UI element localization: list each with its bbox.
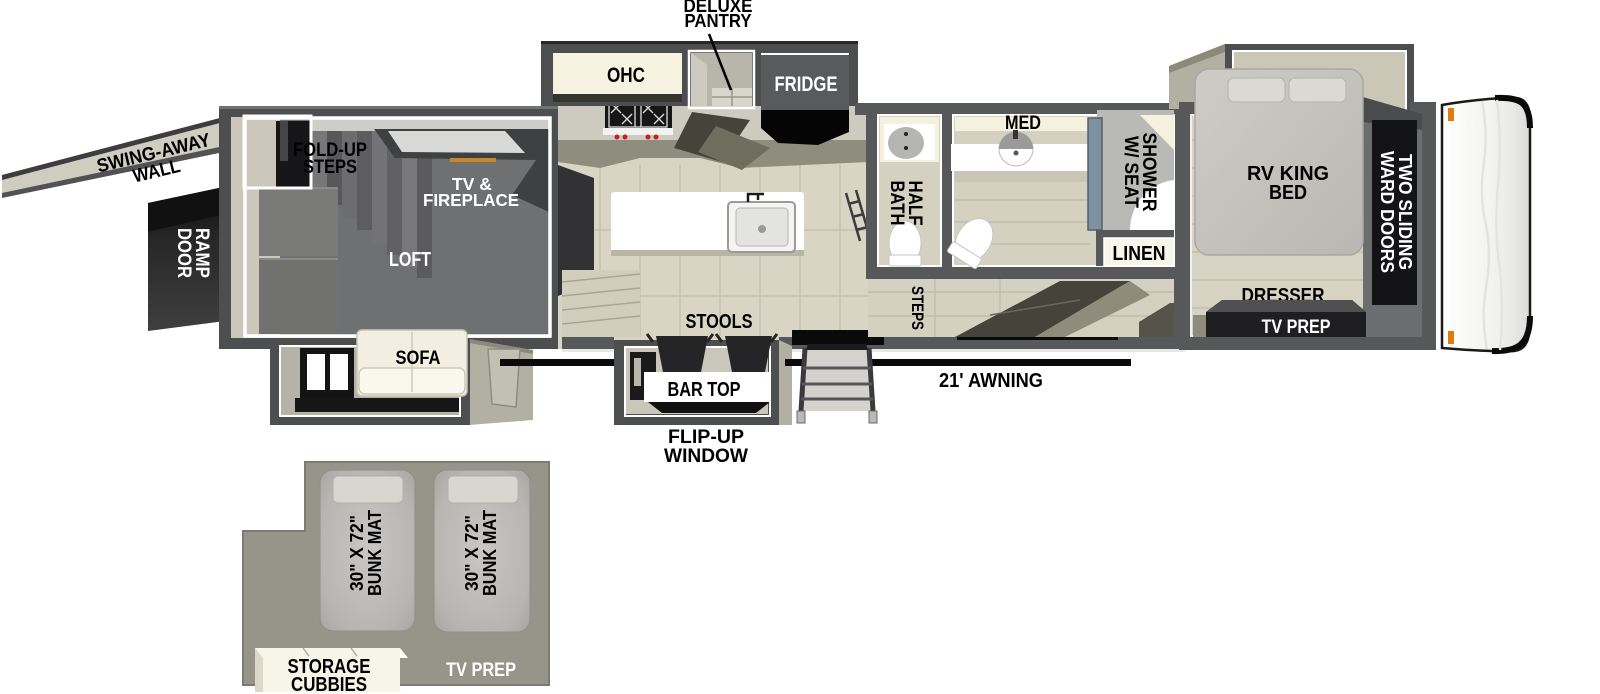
svg-text:STOOLS: STOOLS [686,311,753,333]
svg-text:CUBBIES: CUBBIES [291,674,367,694]
svg-text:30" X 72": 30" X 72" [462,515,482,591]
svg-text:BATH: BATH [886,181,907,226]
svg-text:TWO SLIDING: TWO SLIDING [1395,154,1415,270]
svg-text:STEPS: STEPS [303,157,357,178]
svg-text:PANTRY: PANTRY [685,10,753,31]
svg-text:W/ SEAT: W/ SEAT [1120,136,1141,208]
svg-text:FRIDGE: FRIDGE [775,73,838,96]
svg-text:TV PREP: TV PREP [446,660,516,681]
svg-text:SOFA: SOFA [396,348,441,369]
svg-text:21' AWNING: 21' AWNING [939,370,1043,392]
svg-text:STEPS: STEPS [908,286,927,330]
svg-text:WINDOW: WINDOW [664,445,749,467]
svg-text:LINEN: LINEN [1113,243,1166,265]
svg-text:OHC: OHC [607,64,645,87]
svg-text:BED: BED [1269,182,1307,204]
svg-text:BUNK MAT: BUNK MAT [480,510,500,596]
svg-text:30" X 72": 30" X 72" [347,515,367,591]
svg-text:LOFT: LOFT [389,249,431,271]
svg-text:WARD DOORS: WARD DOORS [1377,151,1397,273]
svg-text:TV PREP: TV PREP [1262,317,1331,338]
svg-text:FIREPLACE: FIREPLACE [423,190,519,210]
svg-text:DOOR: DOOR [173,228,194,278]
svg-text:BAR TOP: BAR TOP [668,379,741,401]
svg-text:MED: MED [1005,113,1041,134]
svg-text:BUNK MAT: BUNK MAT [365,510,385,596]
